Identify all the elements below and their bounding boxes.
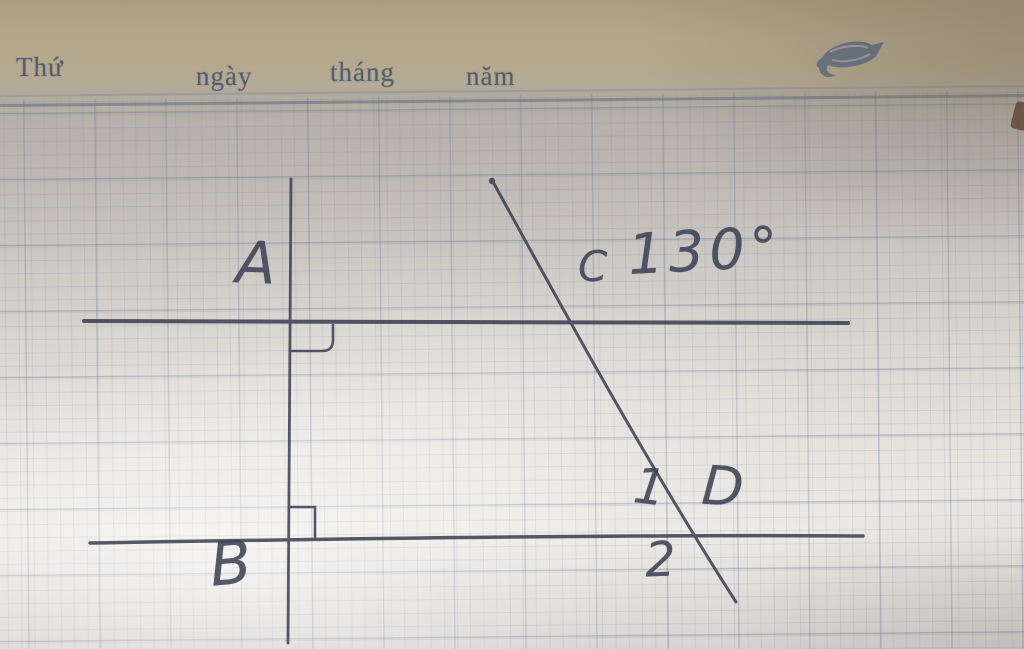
point-label-B: B [207,532,253,595]
point-label-D: D [700,459,745,516]
point-label-C: C [578,246,607,288]
point-label-A: A [235,233,277,292]
right-angle-mark-at-B [289,507,315,538]
angle-value-130-degrees: 130° [627,220,785,284]
notebook-photo: Thứ ngày tháng năm A B C 130° D 1 2 [0,0,1024,649]
perpendicular-line-AB [288,179,291,643]
angle-label-1: 1 [631,460,669,514]
line-a-through-A [84,321,848,324]
line-b-through-B [90,536,863,543]
transversal-start-dot [489,178,495,184]
right-angle-mark-at-A [292,325,333,351]
angle-label-2: 2 [644,535,676,584]
geometry-figure [0,0,1024,649]
